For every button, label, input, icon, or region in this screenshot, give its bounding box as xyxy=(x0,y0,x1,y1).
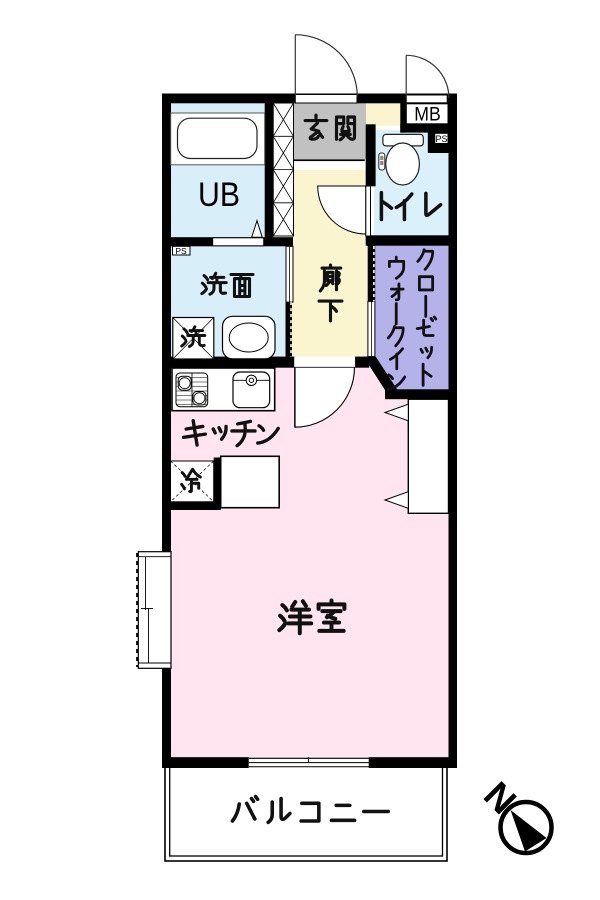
svg-text:PS: PS xyxy=(435,134,447,144)
svg-text:MB: MB xyxy=(414,105,441,126)
svg-text:PS: PS xyxy=(175,246,187,256)
svg-text:UB: UB xyxy=(198,176,240,214)
